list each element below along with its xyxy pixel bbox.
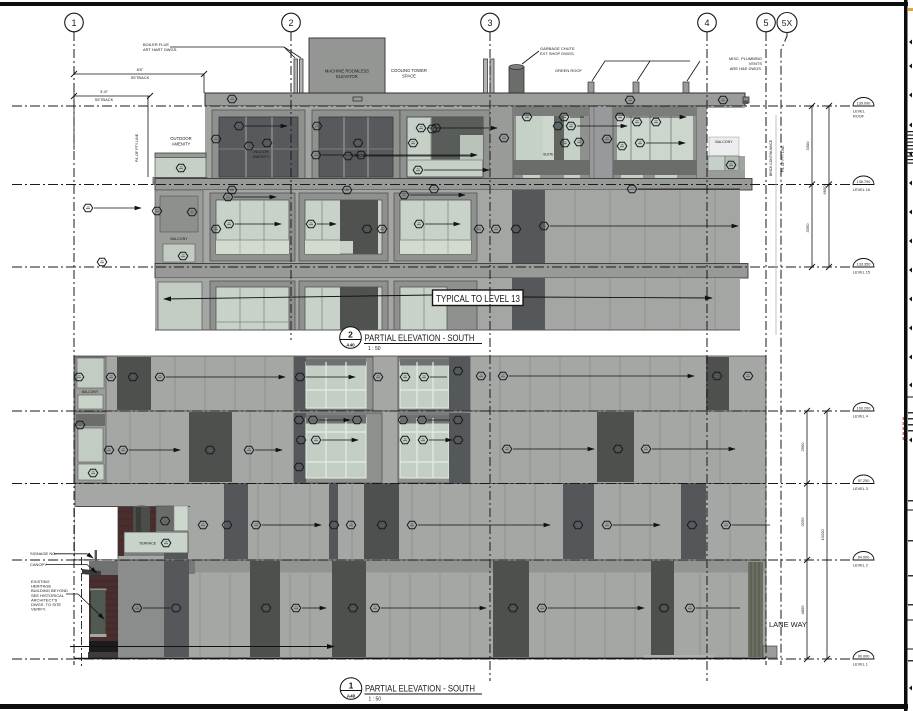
svg-text:EXT SHOP DWGS.: EXT SHOP DWGS. [540,51,575,56]
svg-text:ART HART DWGS.: ART HART DWGS. [143,47,177,52]
svg-text:BALCONY: BALCONY [82,390,99,394]
svg-text:100.200: 100.200 [857,407,871,411]
svg-text:BALCONY: BALCONY [170,237,188,241]
svg-text:139.090: 139.090 [857,102,871,106]
svg-text:MACHINE ROOMLESS: MACHINE ROOMLESS [325,69,369,74]
svg-text:94.000: 94.000 [858,556,870,560]
svg-text:SPACE: SPACE [402,74,416,79]
svg-text:P/L OF PTY LINE: P/L OF PTY LINE [781,145,785,172]
svg-text:3300: 3300 [805,141,810,151]
svg-text:ELEVATOR: ELEVATOR [336,74,358,79]
svg-text:LEVEL 2: LEVEL 2 [853,564,868,568]
svg-text:LEVEL 3: LEVEL 3 [853,487,868,491]
svg-text:ROOF: ROOF [853,115,865,119]
svg-text:6650: 6650 [822,185,827,195]
svg-text:1 : 50: 1 : 50 [369,697,382,703]
svg-text:3250: 3250 [800,517,805,527]
svg-text:PARTIAL ELEVATION - SOUTH: PARTIAL ELEVATION - SOUTH [365,333,475,343]
svg-text:10200: 10200 [820,529,825,541]
svg-text:2950: 2950 [800,442,805,452]
svg-text:1: 1 [71,18,76,28]
svg-text:LEVEL 16: LEVEL 16 [853,188,870,192]
svg-text:97.250: 97.250 [858,479,870,483]
svg-text:TYPICAL TO LEVEL 13: TYPICAL TO LEVEL 13 [436,294,520,305]
svg-text:SIGNAGE NO.: SIGNAGE NO. [30,551,56,556]
svg-text:LEVEL 1: LEVEL 1 [853,663,868,667]
svg-text:ARE H&E DWGS.: ARE H&E DWGS. [730,66,762,71]
svg-text:AMENITY: AMENITY [253,155,270,159]
svg-text:P/L OF PTY LINE: P/L OF PTY LINE [135,133,139,162]
svg-text:8'6": 8'6" [137,67,144,72]
svg-text:A40: A40 [347,694,356,699]
svg-text:LEVEL 4: LEVEL 4 [853,415,868,419]
svg-text:5X: 5X [782,18,793,28]
svg-text:133.350: 133.350 [857,263,871,267]
svg-text:5: 5 [763,18,768,28]
svg-text:INDOOR: INDOOR [253,150,268,154]
svg-text:LEVEL 15: LEVEL 15 [853,271,870,275]
svg-text:CANOPY: CANOPY [30,562,47,567]
svg-text:3: 3 [487,18,492,28]
svg-text:2: 2 [348,330,353,340]
svg-text:PARTIAL ELEVATION - SOUTH: PARTIAL ELEVATION - SOUTH [365,684,475,694]
svg-text:VERIFY.: VERIFY. [31,607,46,612]
svg-text:BALCONY: BALCONY [715,140,733,144]
svg-text:4800: 4800 [800,605,805,615]
svg-text:3'-6": 3'-6" [100,89,109,94]
svg-text:BRICK CONTINUANCE: BRICK CONTINUANCE [769,139,773,176]
svg-text:1: 1 [349,681,354,691]
svg-text:TERRACE: TERRACE [139,542,157,546]
svg-text:AMENITY: AMENITY [172,142,191,147]
svg-text:136.790: 136.790 [857,180,871,184]
svg-text:3350: 3350 [805,223,810,233]
svg-text:2: 2 [288,18,293,28]
svg-text:OUTDOOR: OUTDOOR [170,136,191,141]
svg-text:A40: A40 [346,343,355,348]
svg-text:90.000: 90.000 [858,655,870,659]
svg-text:4: 4 [704,18,709,28]
svg-text:LEVEL: LEVEL [853,110,865,114]
svg-text:1 : 50: 1 : 50 [368,346,381,352]
svg-text:LANE WAY: LANE WAY [769,620,807,629]
svg-text:SETBACK: SETBACK [131,75,150,80]
svg-text:GREEN ROOF: GREEN ROOF [555,68,582,73]
svg-text:COOLING TOWER: COOLING TOWER [391,68,427,73]
svg-text:SETBACK: SETBACK [95,97,114,102]
svg-text:SUITE: SUITE [543,153,554,157]
